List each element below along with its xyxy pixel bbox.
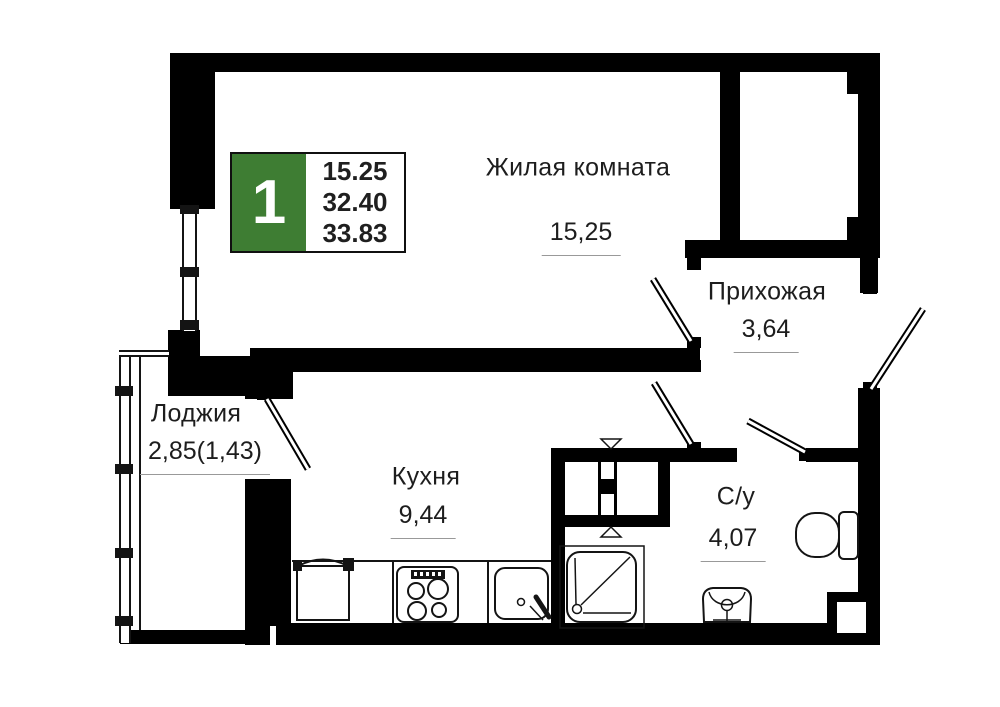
door-swing-loggia xyxy=(267,399,308,469)
apartment-areas: 15.25 32.40 33.83 xyxy=(306,154,404,251)
vent-triangle-icon xyxy=(601,527,621,537)
room-label-hallway: Прихожая xyxy=(708,278,826,307)
stove-icon xyxy=(397,567,458,622)
apartment-badge: 1 15.25 32.40 33.83 xyxy=(230,152,406,253)
room-area-kitchen: 9,44 xyxy=(391,501,456,539)
washbasin-icon xyxy=(703,588,751,622)
badge-living-area: 15.25 xyxy=(322,156,387,187)
room-area-hallway: 3,64 xyxy=(734,315,799,353)
room-label-loggia: Лоджия xyxy=(151,400,241,429)
fixtures-layer xyxy=(0,0,1000,707)
door-swing-living-room xyxy=(653,279,691,341)
room-area-loggia: 2,85(1,43) xyxy=(140,437,270,475)
room-area-bathroom: 4,07 xyxy=(701,524,766,562)
room-label-bathroom: С/у xyxy=(717,483,755,512)
shower-icon xyxy=(560,546,644,628)
room-area-living: 15,25 xyxy=(542,218,621,256)
badge-area: 32.40 xyxy=(322,187,387,218)
room-label-living: Жилая комната xyxy=(486,154,670,183)
room-label-kitchen: Кухня xyxy=(392,463,460,492)
kitchen-sink-icon xyxy=(495,568,549,620)
door-swing-entry xyxy=(871,309,923,389)
door-swing-bathroom xyxy=(748,421,805,452)
floor-plan: Жилая комната 15,25 Прихожая 3,64 Лоджия… xyxy=(0,0,1000,707)
vent-triangle-icon xyxy=(601,439,621,449)
badge-total-area: 33.83 xyxy=(322,218,387,249)
toilet-icon xyxy=(796,512,858,559)
fridge-icon xyxy=(294,559,353,620)
rooms-count-badge: 1 xyxy=(232,154,306,251)
door-swing-kitchen xyxy=(654,383,691,444)
